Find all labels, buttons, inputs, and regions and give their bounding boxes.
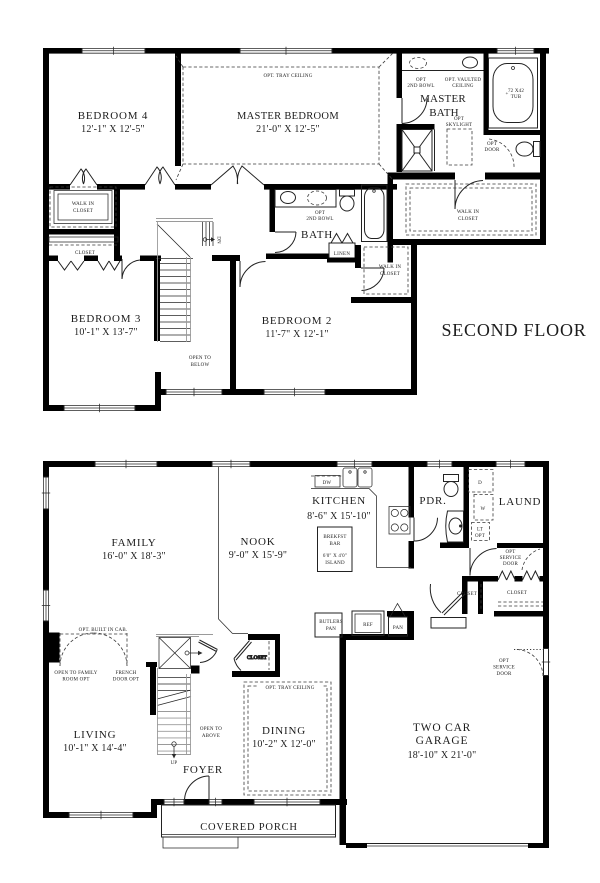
svg-text:CLOSET: CLOSET bbox=[75, 251, 95, 256]
svg-text:KITCHEN: KITCHEN bbox=[312, 495, 366, 507]
svg-text:BEDROOM 2: BEDROOM 2 bbox=[262, 315, 332, 327]
svg-text:DW: DW bbox=[323, 481, 332, 486]
svg-text:PAN: PAN bbox=[393, 626, 403, 631]
svg-text:DINING: DINING bbox=[262, 725, 306, 737]
svg-text:11'-7" X 12'-1": 11'-7" X 12'-1" bbox=[265, 329, 328, 340]
svg-text:2ND BOWL: 2ND BOWL bbox=[407, 84, 434, 89]
svg-text:10'-2" X 12'-0": 10'-2" X 12'-0" bbox=[252, 739, 316, 750]
svg-text:LINEN: LINEN bbox=[334, 252, 351, 257]
svg-text:OPT: OPT bbox=[315, 211, 325, 216]
svg-text:OPT: OPT bbox=[475, 534, 485, 539]
svg-text:6'0" X 4'0": 6'0" X 4'0" bbox=[323, 554, 347, 559]
svg-text:BATH: BATH bbox=[429, 107, 459, 119]
svg-text:WALK IN: WALK IN bbox=[457, 210, 480, 215]
svg-text:OPEN TO: OPEN TO bbox=[200, 727, 222, 732]
svg-text:ISLAND: ISLAND bbox=[325, 561, 345, 566]
svg-text:NOOK: NOOK bbox=[241, 536, 276, 548]
svg-text:WALK IN: WALK IN bbox=[379, 265, 402, 270]
svg-text:SERVICE: SERVICE bbox=[493, 666, 515, 671]
svg-text:CLOSET: CLOSET bbox=[380, 272, 400, 277]
svg-text:MASTER BEDROOM: MASTER BEDROOM bbox=[237, 111, 339, 122]
svg-text:GARAGE: GARAGE bbox=[416, 735, 469, 747]
svg-text:UP: UP bbox=[171, 761, 178, 766]
svg-text:SKYLIGHT: SKYLIGHT bbox=[446, 123, 473, 128]
svg-text:8'-6" X 15'-10": 8'-6" X 15'-10" bbox=[307, 511, 371, 522]
svg-text:D: D bbox=[478, 481, 482, 486]
svg-text:FOYER: FOYER bbox=[183, 764, 223, 776]
svg-text:CLOSET: CLOSET bbox=[457, 592, 477, 597]
svg-text:10'-1" X 14'-4": 10'-1" X 14'-4" bbox=[63, 743, 127, 754]
svg-text:SECOND FLOOR: SECOND FLOOR bbox=[441, 320, 586, 340]
svg-text:CLOSET: CLOSET bbox=[507, 591, 527, 596]
svg-text:BATH: BATH bbox=[301, 229, 333, 241]
svg-text:MASTER: MASTER bbox=[420, 93, 466, 105]
svg-text:CLOSET: CLOSET bbox=[73, 209, 93, 214]
svg-text:OPT. TRAY CEILING: OPT. TRAY CEILING bbox=[265, 686, 314, 691]
svg-text:BAR: BAR bbox=[330, 542, 341, 547]
svg-text:OPT: OPT bbox=[505, 550, 515, 555]
svg-text:OPEN TO: OPEN TO bbox=[189, 356, 211, 361]
svg-text:2ND BOWL: 2ND BOWL bbox=[306, 217, 333, 222]
svg-text:CLOSET: CLOSET bbox=[458, 217, 478, 222]
svg-text:CEILING: CEILING bbox=[452, 84, 474, 89]
svg-text:PDR.: PDR. bbox=[419, 495, 446, 507]
svg-text:16'-0" X 18'-3": 16'-0" X 18'-3" bbox=[102, 551, 166, 562]
svg-text:BREKFST: BREKFST bbox=[323, 535, 346, 540]
svg-text:COVERED PORCH: COVERED PORCH bbox=[200, 822, 298, 833]
svg-text:FAMILY: FAMILY bbox=[111, 537, 156, 549]
svg-text:OPT. VAULTED: OPT. VAULTED bbox=[445, 78, 482, 83]
svg-text:TWO CAR: TWO CAR bbox=[413, 722, 471, 734]
svg-text:LIVING: LIVING bbox=[74, 729, 117, 741]
svg-text:21'-0" X 12'-5": 21'-0" X 12'-5" bbox=[256, 124, 320, 135]
svg-text:+: + bbox=[505, 92, 508, 97]
svg-text:SERVICE: SERVICE bbox=[500, 556, 522, 561]
svg-text:OPT. BUILT IN CAB.: OPT. BUILT IN CAB. bbox=[79, 628, 128, 633]
svg-text:BEDROOM 3: BEDROOM 3 bbox=[71, 313, 141, 325]
svg-text:ROOM OPT: ROOM OPT bbox=[62, 678, 89, 683]
svg-text:TUB: TUB bbox=[511, 95, 522, 100]
svg-text:OPT. TRAY CEILING: OPT. TRAY CEILING bbox=[263, 74, 312, 79]
svg-text:BUTLERS: BUTLERS bbox=[319, 620, 343, 625]
svg-text:DOOR: DOOR bbox=[503, 562, 518, 567]
svg-text:CLOSET: CLOSET bbox=[247, 656, 267, 661]
svg-text:OPT: OPT bbox=[416, 78, 426, 83]
svg-text:12'-1" X 12'-5": 12'-1" X 12'-5" bbox=[81, 124, 145, 135]
svg-text:WALK IN: WALK IN bbox=[72, 202, 95, 207]
svg-text:DOOR: DOOR bbox=[497, 672, 512, 677]
svg-text:W: W bbox=[481, 507, 486, 512]
svg-text:OPT: OPT bbox=[487, 142, 497, 147]
svg-text:OPEN TO FAMILY: OPEN TO FAMILY bbox=[54, 671, 97, 676]
svg-text:ABOVE: ABOVE bbox=[202, 734, 220, 739]
svg-text:PAN: PAN bbox=[326, 627, 336, 632]
svg-text:18'-10" X 21'-0": 18'-10" X 21'-0" bbox=[408, 750, 477, 761]
svg-text:LT: LT bbox=[477, 528, 483, 533]
svg-text:DOOR: DOOR bbox=[485, 148, 500, 153]
svg-text:FRENCH: FRENCH bbox=[116, 671, 137, 676]
svg-text:DOOR OPT: DOOR OPT bbox=[113, 678, 139, 683]
svg-text:10'-1" X 13'-7": 10'-1" X 13'-7" bbox=[74, 327, 138, 338]
svg-text:72 X42: 72 X42 bbox=[508, 89, 524, 94]
svg-text:OPT: OPT bbox=[499, 659, 509, 664]
svg-text:BEDROOM 4: BEDROOM 4 bbox=[78, 110, 148, 122]
svg-text:REF: REF bbox=[363, 623, 373, 628]
svg-text:DN: DN bbox=[216, 236, 221, 244]
svg-text:9'-0" X 15'-9": 9'-0" X 15'-9" bbox=[229, 550, 287, 561]
svg-text:LAUND: LAUND bbox=[499, 496, 542, 508]
svg-text:BELOW: BELOW bbox=[191, 363, 210, 368]
